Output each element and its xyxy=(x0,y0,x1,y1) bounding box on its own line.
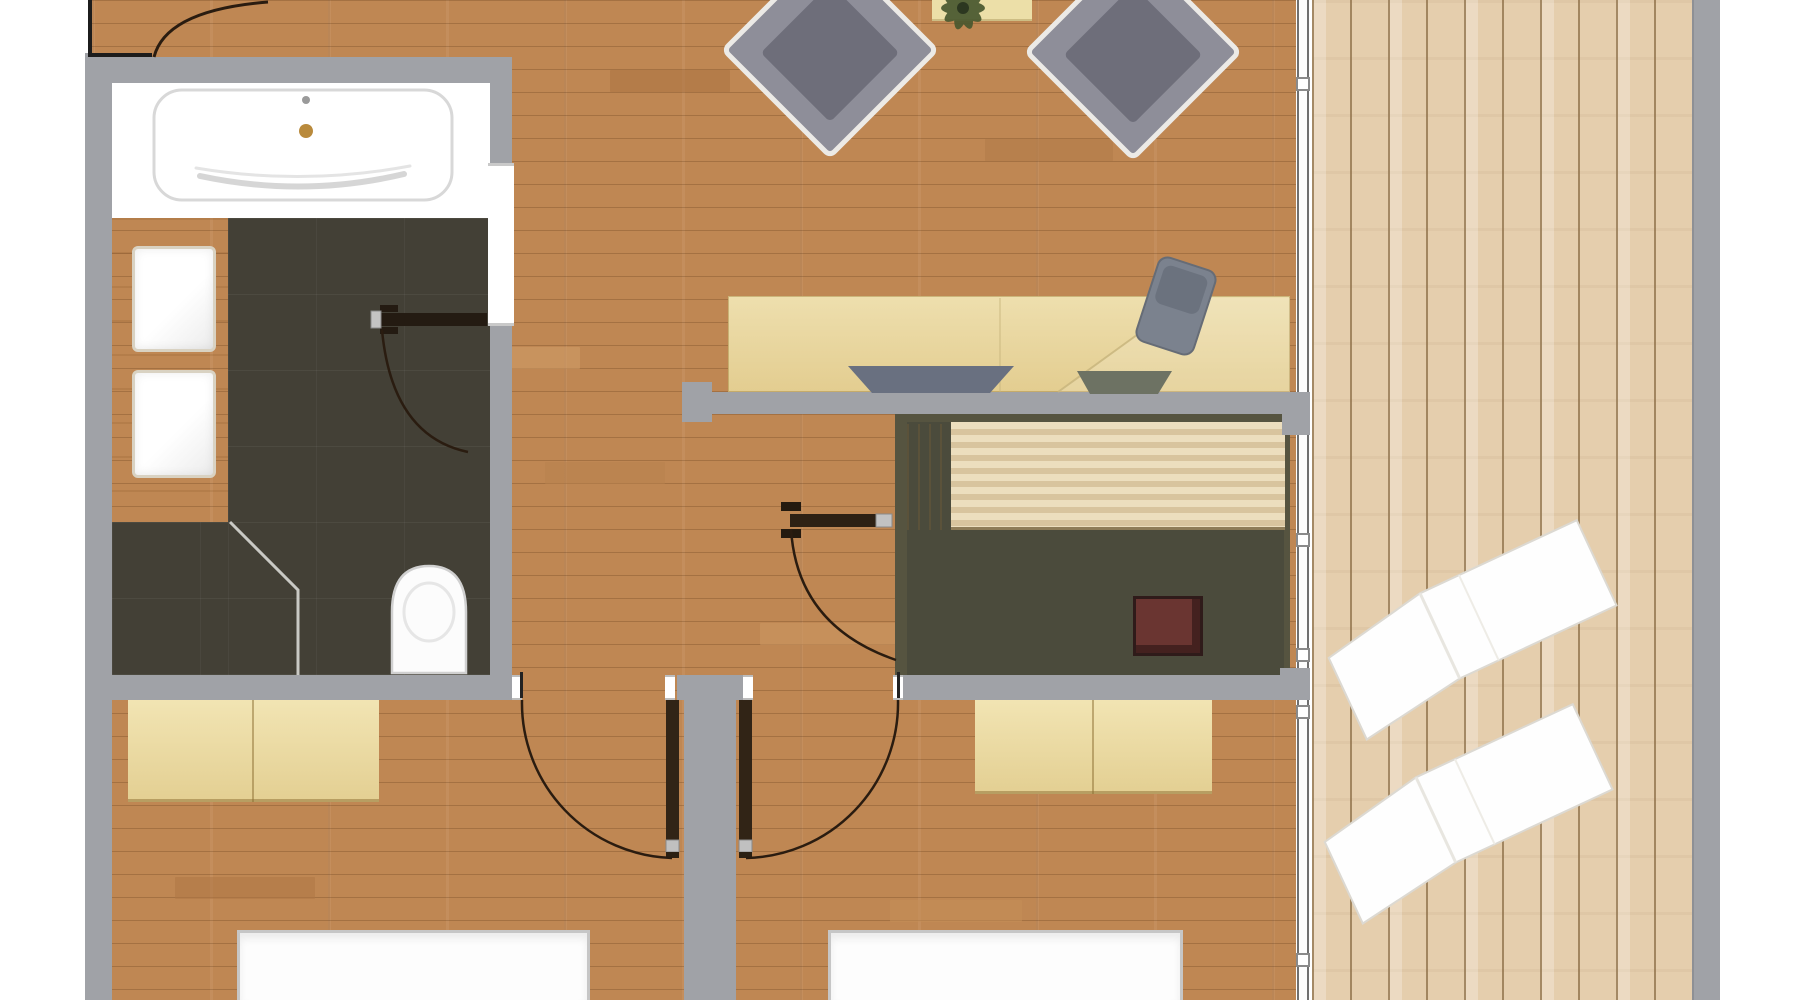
glass-wall xyxy=(1280,0,1310,1000)
tub-drain xyxy=(302,96,310,104)
sauna-door xyxy=(781,502,896,660)
door-swing-arc xyxy=(522,700,672,858)
armchair xyxy=(1027,0,1239,158)
bathroom-door xyxy=(371,305,487,452)
door-swing-arc xyxy=(746,700,898,858)
desk-chair-back xyxy=(1077,371,1172,394)
sun-lounger xyxy=(1320,520,1623,739)
wall-glass-junction xyxy=(1282,392,1310,435)
toilet xyxy=(392,566,466,673)
entry-door-swing-arc xyxy=(154,2,268,57)
armchair xyxy=(724,0,936,156)
tub-faucet xyxy=(299,124,313,138)
fixtures-overlay xyxy=(0,0,1800,1000)
shower-screen xyxy=(230,522,298,675)
potted-plant xyxy=(941,0,985,31)
door-swing-arc xyxy=(382,330,468,452)
wall-glass-junction xyxy=(1280,668,1310,700)
bathtub xyxy=(154,90,452,200)
sun-lounger xyxy=(1316,704,1619,923)
bedroom-door-right xyxy=(739,672,900,858)
desk-chair-back xyxy=(848,366,1014,393)
floor-plan-canvas xyxy=(0,0,1800,1000)
door-swing-arc xyxy=(791,529,896,660)
bedroom-door-left xyxy=(520,672,679,858)
